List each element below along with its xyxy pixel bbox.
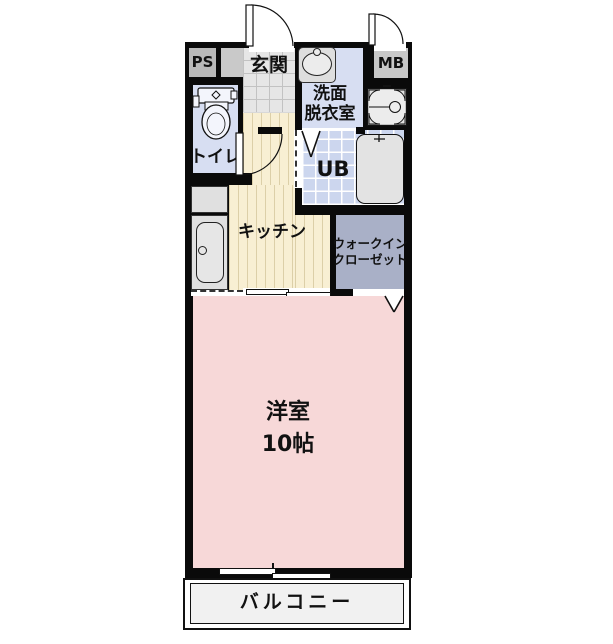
closet-label-line1: ウォークイン	[332, 236, 407, 251]
washbasin-faucet	[313, 48, 321, 56]
mb-door-gap	[374, 42, 406, 51]
balcony-label: バルコニー	[190, 591, 404, 614]
entrance-door-gap	[249, 42, 294, 52]
bath-wall-stub	[356, 127, 365, 134]
mb-label: MB	[374, 54, 408, 72]
closet-door-gap	[353, 289, 404, 296]
closet-label: ウォークイン クローゼット	[332, 236, 408, 268]
bath-label: UB	[302, 157, 364, 182]
entrance-door-icon	[246, 5, 293, 46]
western-room-size: 10帖	[193, 432, 383, 458]
floor-plan: PS 玄関 トイレ キッチン 洗面 脱衣室 MB UB ウォークイン クローゼッ…	[0, 0, 613, 644]
entrance-label: 玄関	[241, 54, 297, 77]
kitchen-label: キッチン	[232, 222, 312, 242]
toilet-wall-stub	[243, 173, 252, 185]
bathtub-icon	[356, 134, 404, 204]
kitchen-counter	[191, 186, 228, 213]
western-room-label: 洋室	[193, 400, 383, 426]
washroom-label-line1: 洗面	[313, 84, 347, 104]
closet-label-line2: クローゼット	[332, 252, 407, 267]
washroom-label: 洗面 脱衣室	[296, 84, 364, 124]
toilet-label: トイレ	[190, 147, 241, 167]
kitchen-sink-drain	[198, 246, 207, 255]
bath-boundary	[302, 128, 363, 131]
dashed-boundary-vertical	[295, 130, 297, 187]
sliding-door-pane	[246, 289, 289, 295]
mb-door-icon	[369, 14, 403, 45]
ps-label: PS	[189, 53, 216, 71]
sliding-window-icon	[219, 568, 276, 575]
washroom-label-line2: 脱衣室	[305, 104, 356, 124]
